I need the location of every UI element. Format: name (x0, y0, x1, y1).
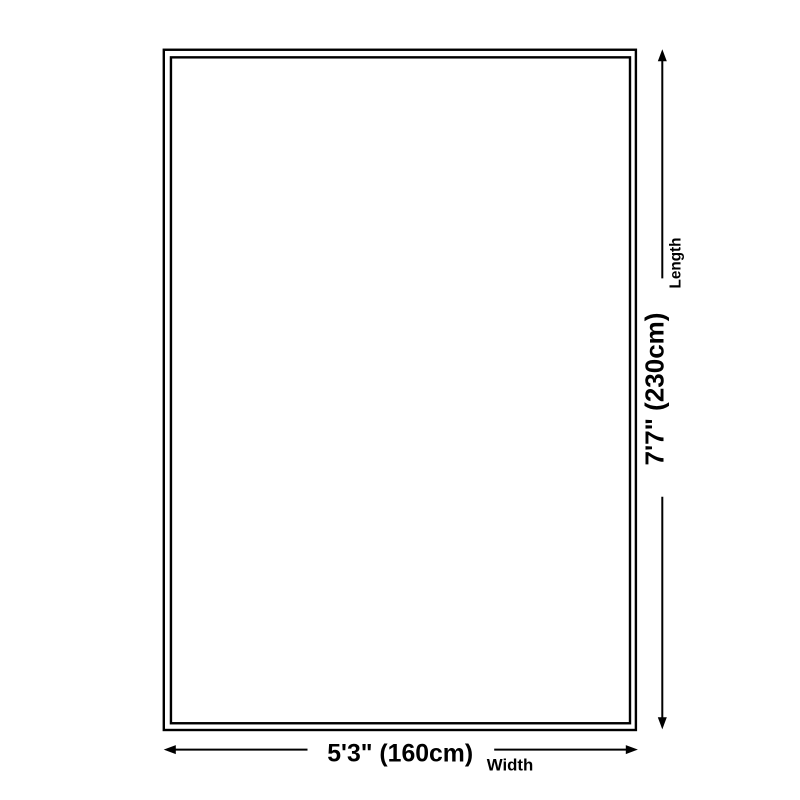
svg-text:Length: Length (668, 238, 685, 289)
svg-text:Width: Width (487, 756, 533, 775)
svg-text:7'7" (230cm): 7'7" (230cm) (640, 313, 670, 466)
svg-text:5'3" (160cm): 5'3" (160cm) (327, 740, 473, 767)
